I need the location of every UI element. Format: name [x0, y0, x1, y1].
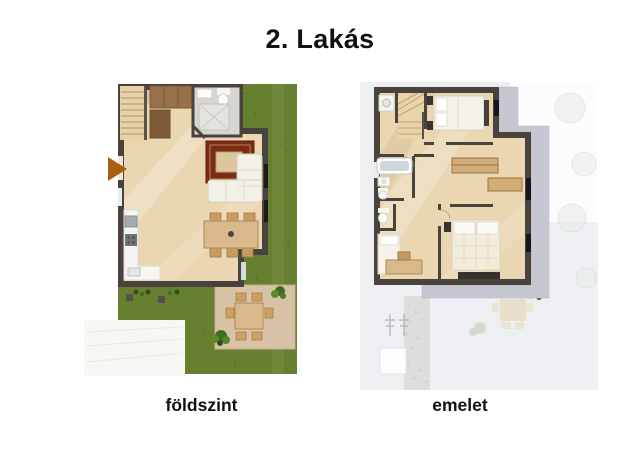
- page-title: 2. Lakás: [0, 24, 640, 55]
- sofa-bottom: [208, 180, 262, 202]
- upper-floor-label: emelet: [360, 395, 560, 416]
- stair-rail: [144, 86, 147, 140]
- bathtub-water: [380, 161, 409, 171]
- ground-floor-label: földszint: [84, 395, 319, 416]
- ground-floor-plan-drawing: [84, 80, 298, 376]
- upper-floor-plan: [360, 82, 598, 390]
- ghost-shed: [380, 348, 406, 374]
- kitchen-sink: [128, 268, 140, 276]
- nightstand: [427, 96, 433, 105]
- dresser: [458, 272, 500, 279]
- patio-door: [241, 262, 246, 280]
- desk: [386, 260, 422, 274]
- nightstand: [444, 222, 451, 232]
- staircase: [120, 86, 147, 140]
- pillow: [380, 236, 398, 245]
- patio: [211, 285, 295, 349]
- living-area: [206, 141, 262, 202]
- stair-rail: [422, 112, 424, 139]
- dining-set: [204, 213, 258, 257]
- desk-chair: [398, 252, 410, 260]
- toilet: [379, 191, 388, 199]
- pillow: [436, 113, 447, 126]
- gravel-path: [404, 296, 430, 390]
- bed-bench: [484, 100, 489, 126]
- ground-floor-plan: [84, 80, 298, 376]
- staircase-upper: [398, 93, 424, 139]
- second-bedroom: [444, 220, 500, 279]
- pillow: [436, 98, 447, 111]
- table-vase: [228, 231, 234, 237]
- sink: [197, 89, 212, 98]
- pillow: [454, 222, 475, 234]
- patio-table: [235, 303, 263, 329]
- nightstand: [427, 121, 433, 130]
- stove: [125, 234, 137, 246]
- fridge: [125, 216, 137, 227]
- floor-plan-page: 2. Lakás: [0, 0, 640, 452]
- master-bedroom: [427, 96, 489, 130]
- bathroom: [193, 86, 241, 138]
- pillow: [477, 222, 498, 234]
- washer-drum: [383, 99, 391, 107]
- utility-closet: [379, 95, 394, 111]
- upper-floor-plan-drawing: [360, 82, 598, 390]
- terrace: [84, 320, 185, 376]
